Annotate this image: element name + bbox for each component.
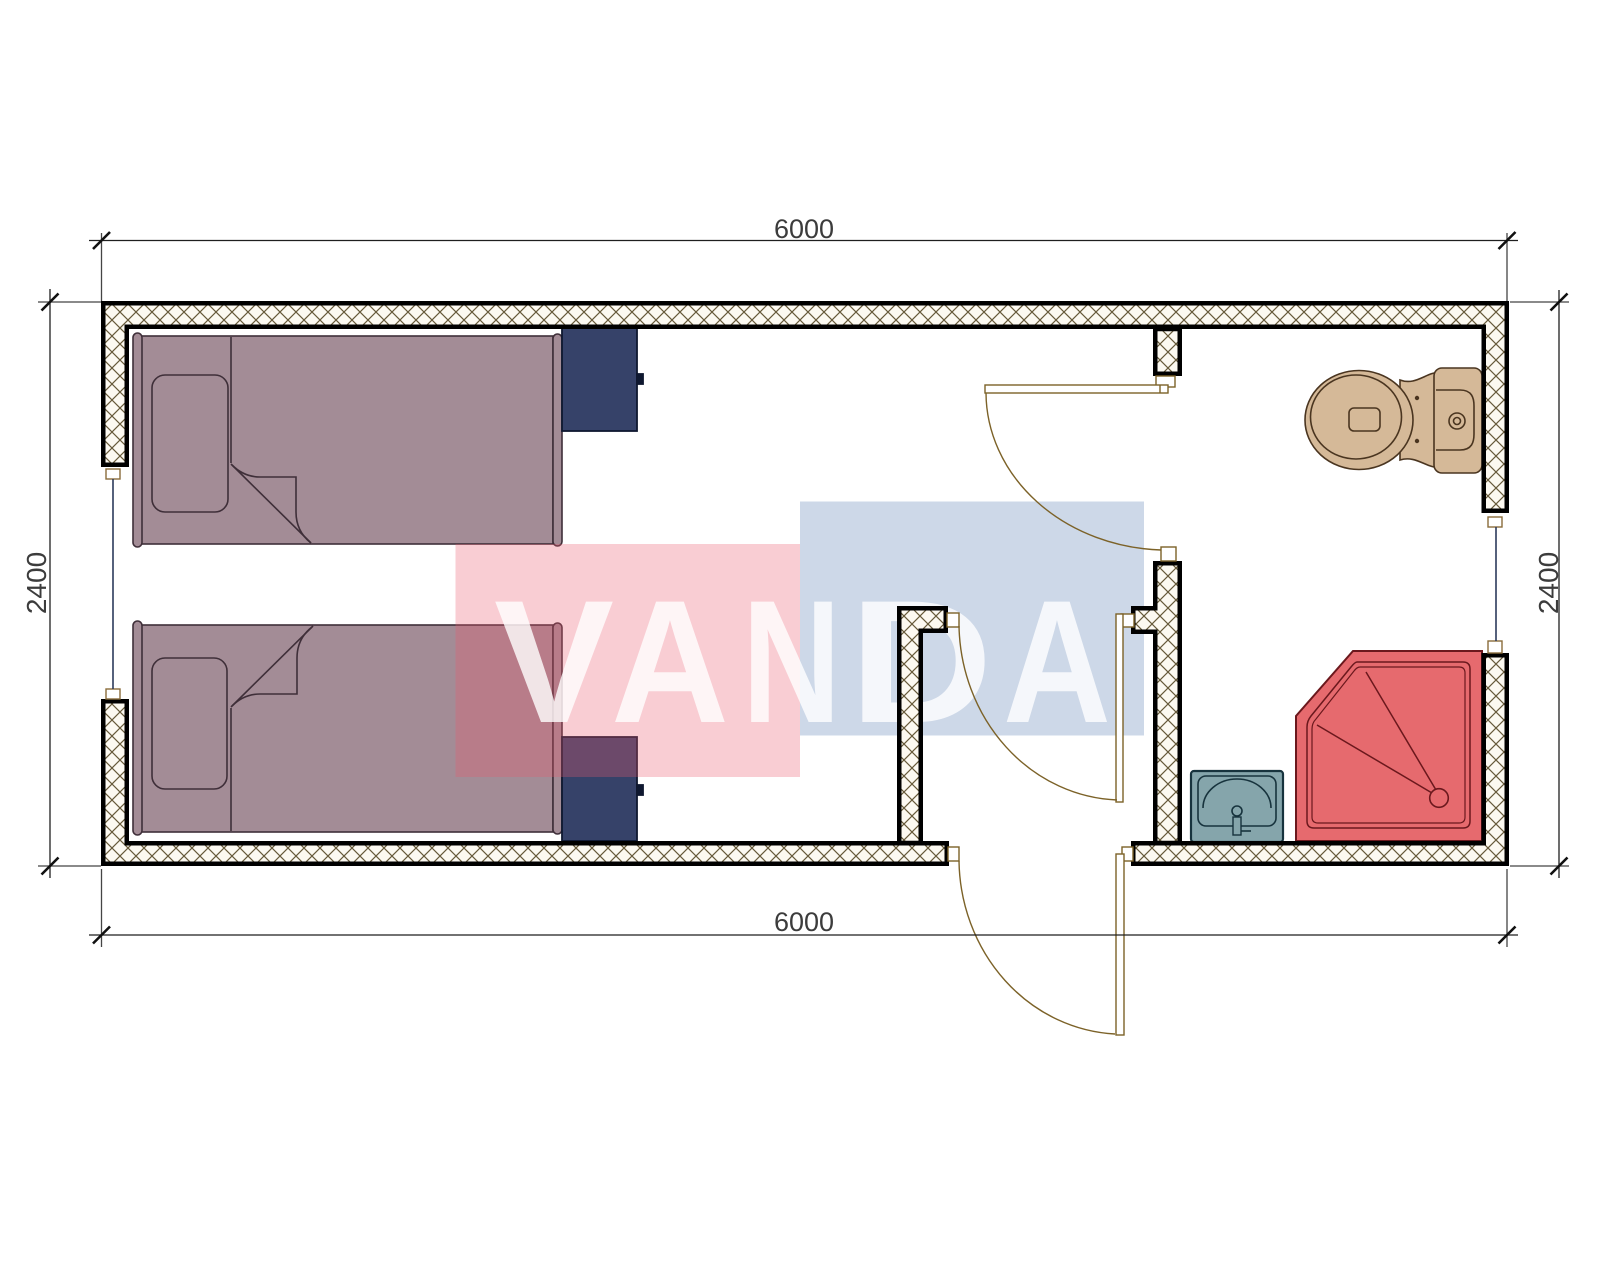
svg-text:6000: 6000	[774, 907, 834, 937]
svg-text:A: A	[1003, 565, 1111, 760]
svg-text:2400: 2400	[21, 552, 52, 614]
svg-text:2400: 2400	[1533, 552, 1564, 614]
svg-text:A: A	[611, 565, 729, 760]
svg-text:V: V	[494, 565, 614, 760]
svg-text:N: N	[742, 565, 841, 760]
svg-text:6000: 6000	[774, 214, 834, 244]
